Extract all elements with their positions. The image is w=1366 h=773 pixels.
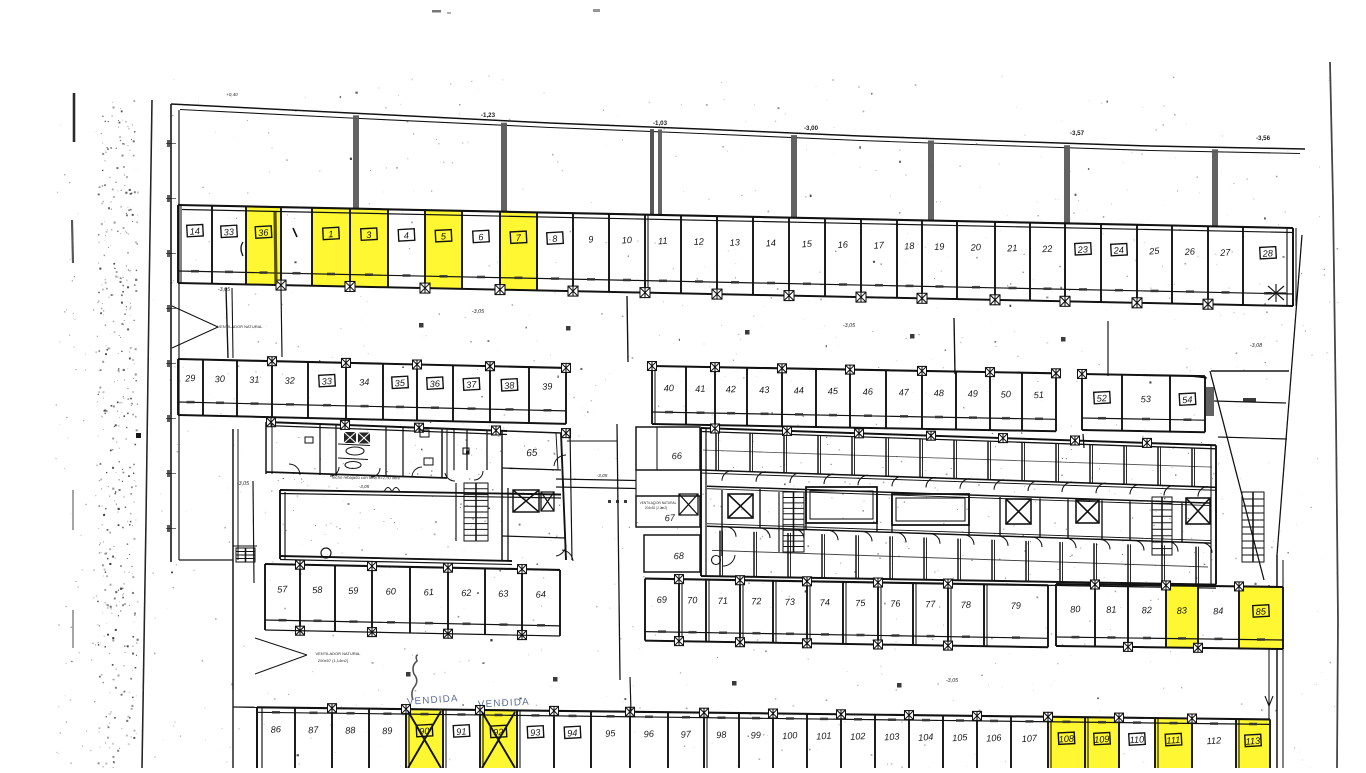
svg-text:37: 37 bbox=[466, 379, 478, 390]
svg-text:84: 84 bbox=[1213, 606, 1224, 617]
svg-text:65: 65 bbox=[526, 448, 538, 460]
svg-text:93: 93 bbox=[530, 727, 542, 738]
svg-text:100: 100 bbox=[782, 730, 799, 741]
svg-text:32: 32 bbox=[284, 375, 295, 386]
svg-text:105: 105 bbox=[952, 732, 969, 743]
svg-text:69: 69 bbox=[656, 594, 667, 605]
svg-text:33: 33 bbox=[223, 227, 235, 238]
svg-text:12: 12 bbox=[693, 236, 704, 247]
svg-text:50: 50 bbox=[1000, 389, 1012, 400]
svg-text:techo rebajado con lona h=2,50: techo rebajado con lona h=2,50 libre bbox=[332, 475, 401, 481]
svg-text:29: 29 bbox=[184, 373, 196, 384]
svg-text:VENTILADOR NATURAL: VENTILADOR NATURAL bbox=[315, 651, 361, 656]
svg-text:-3,05: -3,05 bbox=[472, 309, 485, 315]
svg-text:16: 16 bbox=[837, 239, 849, 250]
svg-text:111: 111 bbox=[1166, 735, 1181, 746]
svg-text:44: 44 bbox=[793, 385, 804, 396]
svg-text:67: 67 bbox=[664, 513, 676, 524]
svg-text:-3,05: -3,05 bbox=[946, 678, 959, 684]
svg-text:-3,05: -3,05 bbox=[237, 481, 250, 487]
svg-text:38: 38 bbox=[504, 380, 516, 391]
svg-text:36: 36 bbox=[429, 379, 441, 390]
svg-text:81: 81 bbox=[1106, 604, 1117, 615]
svg-text:59: 59 bbox=[348, 585, 359, 596]
svg-text:103: 103 bbox=[884, 731, 901, 742]
svg-text:204x52 (2,2m2): 204x52 (2,2m2) bbox=[645, 506, 667, 510]
svg-text:19: 19 bbox=[934, 241, 945, 252]
svg-text:74: 74 bbox=[819, 597, 830, 608]
svg-text:108: 108 bbox=[1058, 733, 1075, 744]
svg-text:72: 72 bbox=[751, 596, 762, 607]
svg-text:109: 109 bbox=[1094, 734, 1110, 745]
svg-text:97: 97 bbox=[680, 729, 692, 740]
svg-text:89: 89 bbox=[382, 726, 393, 737]
svg-text:70: 70 bbox=[687, 595, 699, 606]
svg-text:52: 52 bbox=[1096, 393, 1107, 404]
svg-text:53: 53 bbox=[1140, 394, 1152, 405]
svg-text:36: 36 bbox=[258, 227, 270, 238]
svg-text:58: 58 bbox=[312, 585, 324, 596]
svg-text:-3,05: -3,05 bbox=[597, 473, 608, 479]
svg-text:-3,56: -3,56 bbox=[1256, 135, 1271, 142]
svg-text:54: 54 bbox=[1182, 395, 1193, 406]
svg-text:34: 34 bbox=[359, 377, 370, 388]
svg-text:77: 77 bbox=[925, 599, 937, 610]
svg-text:-3,57: -3,57 bbox=[1070, 130, 1085, 137]
svg-text:68: 68 bbox=[673, 551, 685, 562]
svg-text:1: 1 bbox=[328, 229, 334, 239]
svg-text:45: 45 bbox=[827, 386, 839, 397]
svg-text:64: 64 bbox=[535, 589, 546, 600]
svg-text:60: 60 bbox=[385, 586, 397, 597]
svg-text:66: 66 bbox=[671, 451, 683, 462]
svg-text:23: 23 bbox=[1076, 244, 1089, 255]
svg-text:106: 106 bbox=[986, 733, 1003, 744]
svg-text:-3,05: -3,05 bbox=[843, 323, 856, 329]
svg-text:4: 4 bbox=[403, 231, 409, 241]
svg-text:99: 99 bbox=[750, 730, 761, 741]
svg-text:48: 48 bbox=[933, 388, 945, 399]
svg-text:22: 22 bbox=[1041, 244, 1053, 255]
svg-text:113: 113 bbox=[1245, 736, 1261, 747]
svg-text:110: 110 bbox=[1129, 734, 1145, 745]
svg-text:14: 14 bbox=[765, 238, 776, 249]
svg-text:98: 98 bbox=[716, 730, 728, 741]
svg-text:43: 43 bbox=[759, 385, 771, 396]
svg-text:42: 42 bbox=[725, 384, 736, 395]
svg-text:73: 73 bbox=[784, 597, 796, 608]
svg-text:107: 107 bbox=[1021, 733, 1038, 744]
svg-text:26: 26 bbox=[1183, 246, 1196, 257]
svg-text:94: 94 bbox=[567, 728, 578, 739]
svg-text:86: 86 bbox=[270, 724, 282, 735]
svg-text:10: 10 bbox=[621, 235, 633, 246]
svg-text:9: 9 bbox=[588, 234, 594, 244]
svg-text:24: 24 bbox=[1112, 245, 1124, 256]
svg-text:-3,08: -3,08 bbox=[1250, 343, 1262, 349]
svg-text:47: 47 bbox=[898, 387, 910, 398]
svg-text:31: 31 bbox=[249, 374, 260, 385]
svg-text:102: 102 bbox=[850, 731, 866, 742]
svg-text:112: 112 bbox=[1206, 735, 1221, 746]
svg-text:76: 76 bbox=[890, 598, 902, 609]
svg-text:20: 20 bbox=[969, 242, 982, 253]
svg-text:VENTILACION NATURAL: VENTILACION NATURAL bbox=[640, 501, 677, 505]
svg-text:49: 49 bbox=[967, 388, 978, 399]
svg-text:28: 28 bbox=[1261, 248, 1274, 259]
svg-text:33: 33 bbox=[321, 376, 333, 387]
svg-text:11: 11 bbox=[658, 236, 668, 247]
svg-text:+0,40: +0,40 bbox=[226, 92, 238, 97]
svg-text:82: 82 bbox=[1141, 605, 1152, 616]
svg-text:88: 88 bbox=[345, 725, 357, 736]
svg-text:80: 80 bbox=[1070, 604, 1082, 615]
svg-text:71: 71 bbox=[717, 596, 728, 607]
svg-text:85: 85 bbox=[1255, 606, 1267, 617]
svg-text:35: 35 bbox=[394, 378, 406, 389]
svg-text:27: 27 bbox=[1219, 247, 1232, 258]
svg-text:-3,05: -3,05 bbox=[359, 484, 370, 489]
svg-text:17: 17 bbox=[873, 240, 885, 251]
svg-text:39: 39 bbox=[542, 381, 553, 392]
svg-text:-1,03: -1,03 bbox=[653, 120, 668, 127]
svg-text:14: 14 bbox=[189, 226, 200, 237]
svg-text:57: 57 bbox=[277, 584, 289, 595]
svg-text:-3,00: -3,00 bbox=[804, 125, 819, 132]
svg-text:21: 21 bbox=[1006, 243, 1018, 254]
svg-text:15: 15 bbox=[801, 239, 813, 250]
svg-text:63: 63 bbox=[498, 588, 510, 599]
svg-text:62: 62 bbox=[461, 588, 472, 599]
svg-text:40: 40 bbox=[663, 383, 675, 394]
svg-text:96: 96 bbox=[643, 729, 655, 740]
svg-text:91: 91 bbox=[456, 726, 467, 737]
svg-text:61: 61 bbox=[423, 587, 434, 598]
svg-text:200x57 (1,14m2): 200x57 (1,14m2) bbox=[318, 658, 349, 663]
svg-text:51: 51 bbox=[1033, 390, 1044, 401]
svg-text:104: 104 bbox=[918, 732, 934, 743]
svg-text:18: 18 bbox=[904, 241, 916, 252]
svg-text:101: 101 bbox=[816, 731, 832, 742]
svg-text:-3,05: -3,05 bbox=[218, 287, 231, 293]
svg-text:25: 25 bbox=[1148, 246, 1161, 257]
svg-text:13: 13 bbox=[729, 237, 741, 248]
svg-text:30: 30 bbox=[214, 374, 226, 385]
svg-text:-1,23: -1,23 bbox=[481, 112, 496, 119]
svg-text:41: 41 bbox=[695, 384, 706, 395]
svg-text:95: 95 bbox=[605, 728, 617, 739]
svg-text:75: 75 bbox=[855, 598, 867, 609]
svg-text:78: 78 bbox=[960, 600, 972, 611]
svg-text:46: 46 bbox=[862, 387, 874, 398]
svg-text:87: 87 bbox=[308, 725, 320, 736]
svg-text:VENTILADOR NATURAL: VENTILADOR NATURAL bbox=[217, 324, 263, 329]
svg-text:83: 83 bbox=[1176, 605, 1188, 616]
svg-text:79: 79 bbox=[1010, 600, 1021, 611]
